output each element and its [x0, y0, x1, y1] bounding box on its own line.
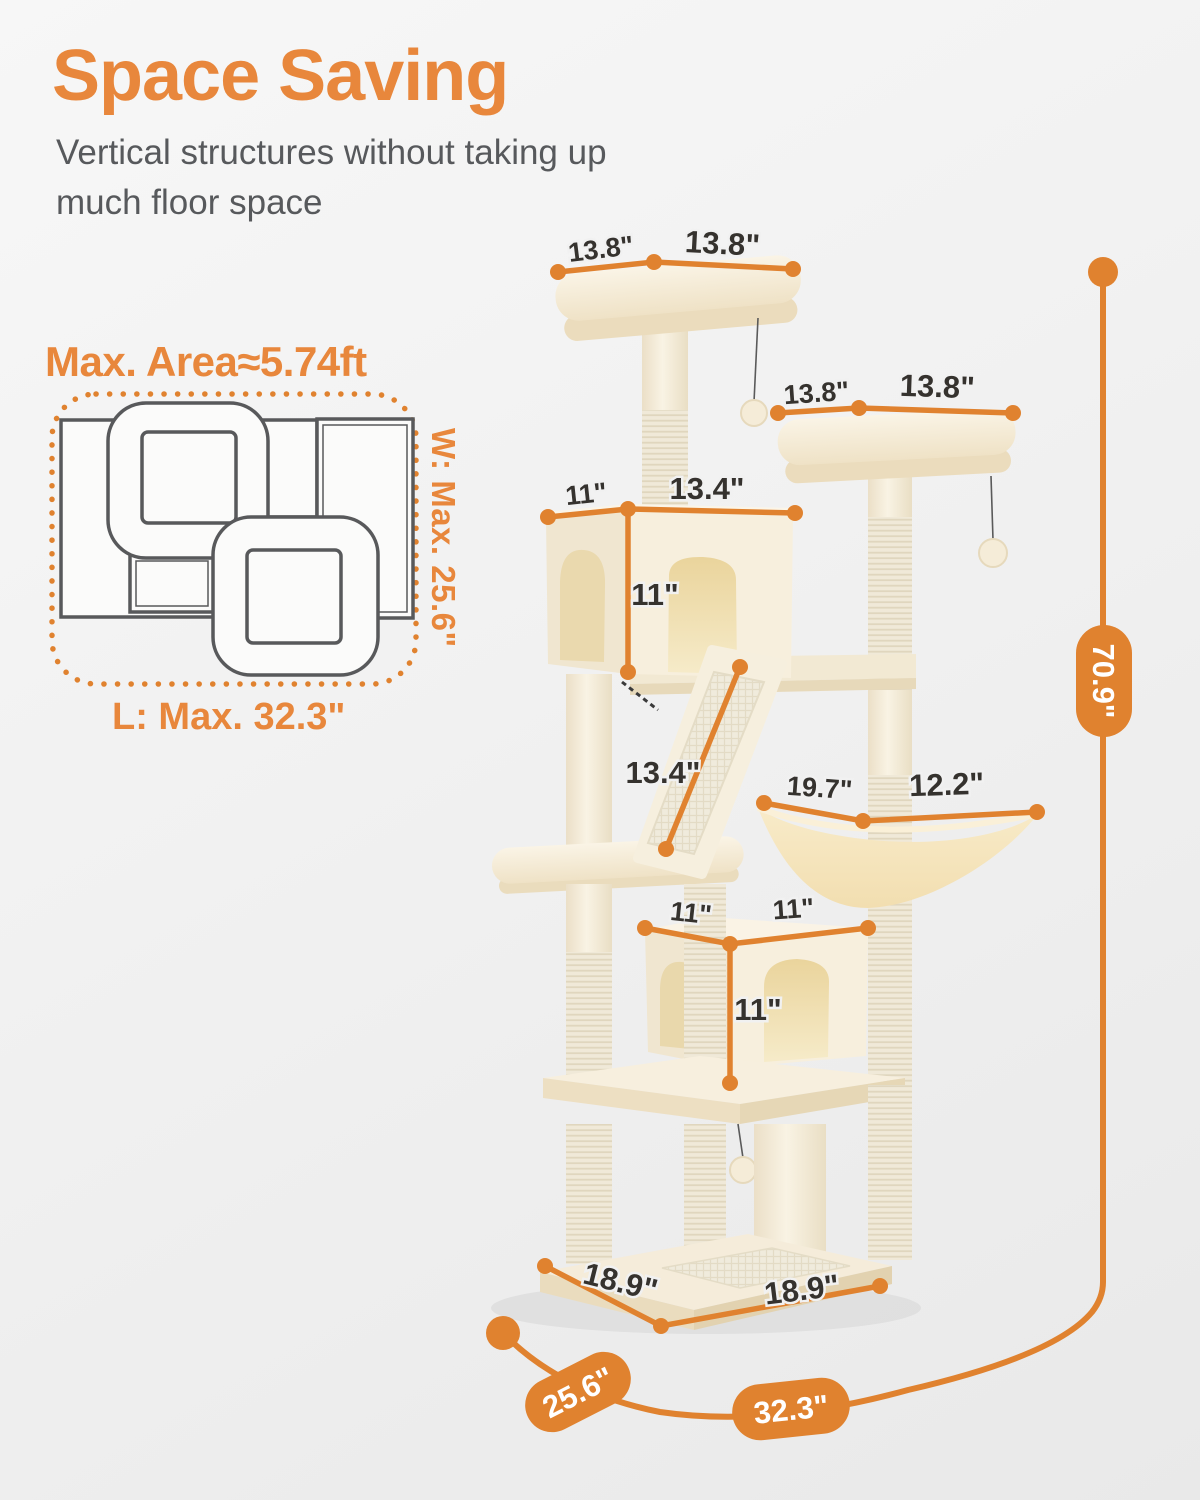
overall-top-dot [1088, 257, 1118, 287]
pompom-ball [741, 400, 767, 426]
lower-condo-height-dim: 11" [734, 992, 781, 1027]
lower-platform-pompom [730, 1124, 756, 1183]
second-perch-pompom [979, 476, 1007, 567]
overall-start-dot [486, 1316, 520, 1350]
upper-condo-left-arch [560, 550, 605, 662]
lower-condo-right-dim: 11" [772, 893, 815, 926]
second-perch-left-dim: 13.8" [783, 376, 850, 410]
second-perch-right-dim: 13.8" [899, 368, 975, 406]
hammock-right-dim: 12.2" [909, 766, 985, 804]
second-perch-dim-line [778, 408, 1013, 413]
upper-condo-height-dim: 11" [631, 577, 678, 612]
space-saving-infographic: Space Saving Vertical structures without… [0, 0, 1200, 1500]
pompom-string [738, 1124, 743, 1158]
left-post-upper [566, 674, 612, 854]
ramp-dim: 13.4" [625, 755, 700, 790]
lower-condo-left-dim: 11" [669, 896, 713, 930]
pompom-ball [979, 539, 1007, 567]
overall-height-pill: 70.9" [1076, 625, 1132, 737]
pompom-ball [730, 1157, 756, 1183]
pompom-string [754, 318, 758, 402]
overall-length-pill: 32.3" [729, 1375, 852, 1443]
top-perch-right-dim: 13.8" [684, 224, 761, 263]
top-perch-pompom [741, 318, 767, 426]
pompom-string [991, 476, 993, 540]
overall-height-value: 70.9" [1086, 643, 1121, 718]
cat-tree-dimension-diagram: 13.8" 13.8" 13.8" 13.8" 11" 13.4" 11" 13… [0, 0, 1200, 1500]
right-tall-post [868, 455, 912, 1085]
upper-condo-left-dim: 11" [564, 477, 608, 511]
left-post-lower [566, 884, 612, 1080]
upper-condo-right-dim: 13.4" [669, 471, 744, 506]
second-perch [777, 408, 1018, 484]
hammock-left-dim: 19.7" [786, 771, 853, 805]
